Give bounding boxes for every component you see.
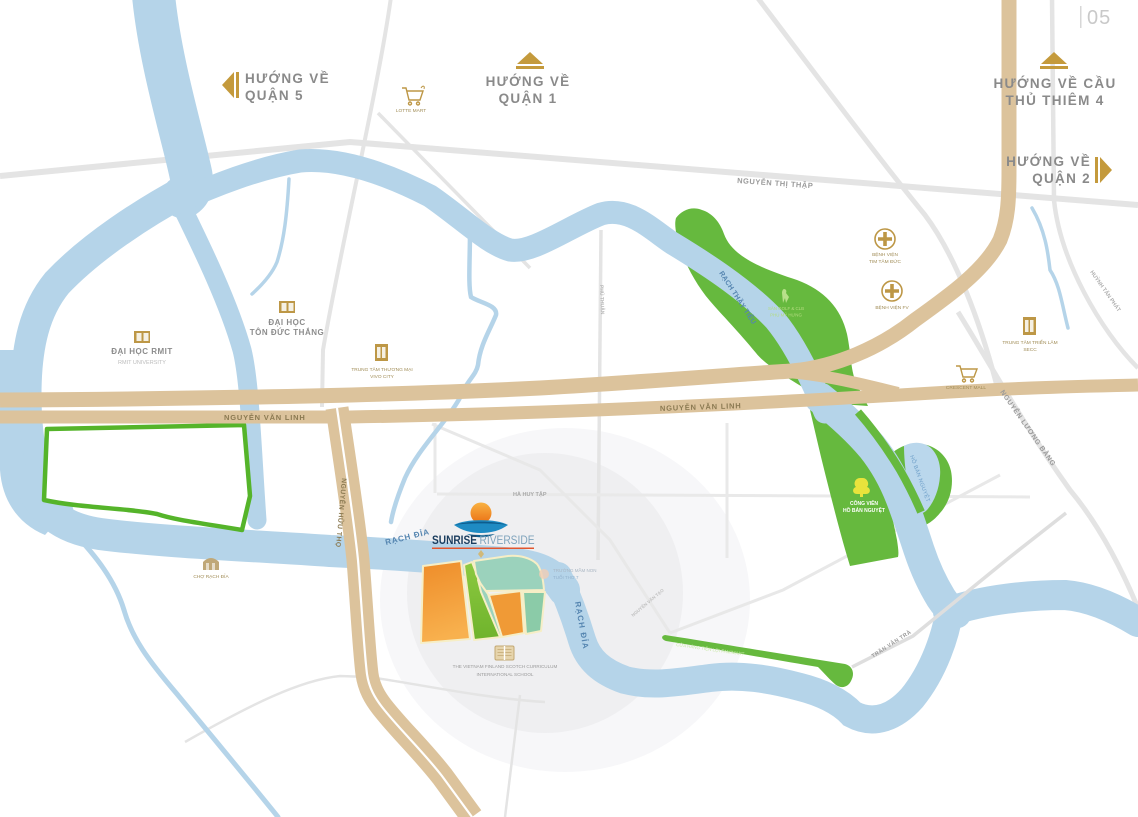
svg-text:HƯỚNG VỀ: HƯỚNG VỀ <box>486 74 571 89</box>
svg-text:ĐẠI HỌC: ĐẠI HỌC <box>268 318 305 327</box>
svg-text:LOTTE MART: LOTTE MART <box>396 108 426 114</box>
svg-text:QUẬN 5: QUẬN 5 <box>245 88 304 103</box>
svg-text:INTERNATIONAL SCHOOL: INTERNATIONAL SCHOOL <box>477 672 534 677</box>
svg-text:CRESCENT MALL: CRESCENT MALL <box>946 385 986 391</box>
svg-text:ĐẠI HỌC RMIT: ĐẠI HỌC RMIT <box>111 347 173 356</box>
svg-text:TRUNG TÂM THƯƠNG MẠI: TRUNG TÂM THƯƠNG MẠI <box>351 366 412 373</box>
svg-text:SUNRISE: SUNRISE <box>432 533 477 547</box>
svg-text:QUẬN 2: QUẬN 2 <box>1032 171 1091 186</box>
svg-text:TUỔI THƠ 7: TUỔI THƠ 7 <box>553 574 579 580</box>
svg-text:PHÚ THUẬN: PHÚ THUẬN <box>598 285 606 315</box>
svg-text:RIVERSIDE: RIVERSIDE <box>480 533 535 547</box>
svg-text:NGUYỄN VĂN LINH: NGUYỄN VĂN LINH <box>224 413 306 422</box>
svg-text:HỒ BÁN NGUYỆT: HỒ BÁN NGUYỆT <box>843 506 885 514</box>
svg-text:HƯỚNG VỀ: HƯỚNG VỀ <box>1006 154 1091 169</box>
svg-text:SECC: SECC <box>1023 347 1037 353</box>
svg-text:CÔNG VIÊN: CÔNG VIÊN <box>850 499 878 507</box>
svg-text:05: 05 <box>1087 7 1111 29</box>
svg-text:TRƯỜNG MẦM NON: TRƯỜNG MẦM NON <box>553 567 596 573</box>
svg-text:TIM TÂM ĐỨC: TIM TÂM ĐỨC <box>869 258 902 265</box>
svg-text:TÔN ĐỨC THẮNG: TÔN ĐỨC THẮNG <box>250 328 324 337</box>
svg-text:THE VIETNAM FINLAND SCOTCH CUR: THE VIETNAM FINLAND SCOTCH CURRICULUM <box>453 664 558 669</box>
svg-text:CHỢ RẠCH ĐỈA: CHỢ RẠCH ĐỈA <box>193 573 229 580</box>
svg-text:HƯỚNG VỀ CẦU: HƯỚNG VỀ CẦU <box>993 76 1116 91</box>
svg-text:QUẬN 1: QUẬN 1 <box>499 91 558 106</box>
svg-text:VIVO CITY: VIVO CITY <box>370 374 395 380</box>
svg-text:RMIT UNIVERSITY: RMIT UNIVERSITY <box>118 360 166 366</box>
svg-text:THỦ THIÊM 4: THỦ THIÊM 4 <box>1005 93 1104 108</box>
svg-text:PHÚ MỸ HƯNG: PHÚ MỸ HƯNG <box>770 313 802 318</box>
svg-text:TRUNG TÂM TRIỂN LÃM: TRUNG TÂM TRIỂN LÃM <box>1002 339 1057 346</box>
svg-text:SÂN GOLF & CLB: SÂN GOLF & CLB <box>768 306 804 311</box>
svg-text:HÀ HUY TẬP: HÀ HUY TẬP <box>513 491 547 498</box>
svg-text:HƯỚNG VỀ: HƯỚNG VỀ <box>245 71 330 86</box>
